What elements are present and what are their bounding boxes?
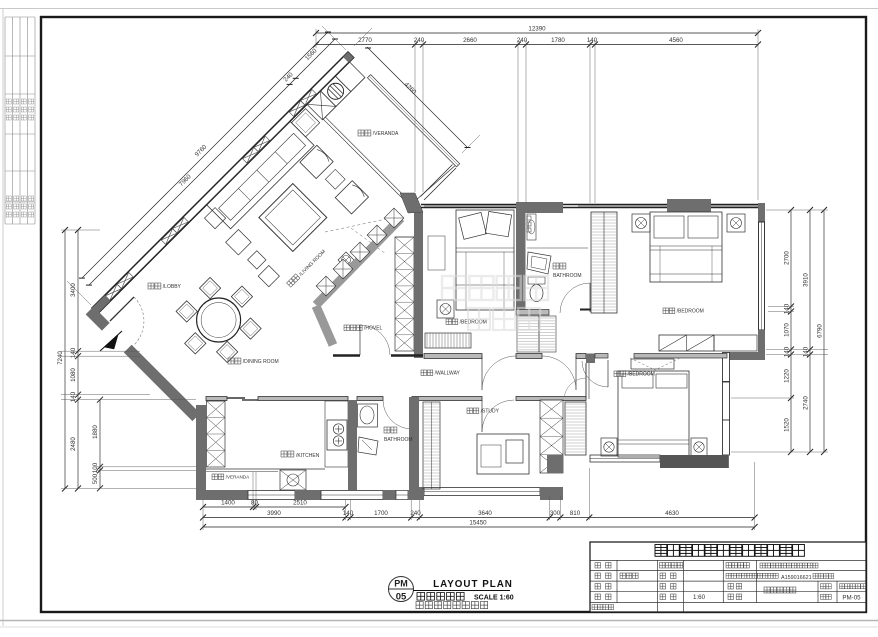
svg-text:140: 140 (70, 391, 77, 402)
svg-text:140: 140 (70, 347, 77, 358)
svg-text:/KITCHEN: /KITCHEN (296, 453, 320, 459)
svg-text:80: 80 (251, 500, 258, 507)
svg-text:BATHROOM: BATHROOM (553, 273, 582, 279)
svg-text:100: 100 (92, 462, 99, 473)
svg-text:/VERANDA: /VERANDA (226, 475, 250, 480)
svg-text:1780: 1780 (551, 37, 565, 44)
svg-text:1070: 1070 (784, 323, 791, 337)
svg-text:1520: 1520 (784, 418, 791, 432)
svg-text:6790: 6790 (817, 324, 824, 338)
svg-text:/DINING ROOM: /DINING ROOM (243, 359, 279, 365)
svg-text:300: 300 (550, 510, 561, 517)
svg-text:/BEDROOM: /BEDROOM (628, 372, 655, 378)
svg-text:SCALE 1:60: SCALE 1:60 (474, 595, 514, 602)
svg-text:1:60: 1:60 (693, 594, 706, 601)
svg-text:2480: 2480 (70, 437, 77, 451)
svg-text:140: 140 (803, 346, 810, 357)
svg-text:2660: 2660 (463, 37, 477, 44)
svg-text:2700: 2700 (784, 251, 791, 265)
svg-text:140: 140 (587, 37, 598, 44)
svg-text:PM-05: PM-05 (842, 594, 861, 601)
svg-text:PM: PM (394, 579, 408, 589)
svg-text:LAYOUT PLAN: LAYOUT PLAN (433, 579, 513, 590)
svg-text:1220: 1220 (784, 369, 791, 383)
svg-text:140: 140 (784, 346, 791, 357)
svg-text:140: 140 (784, 303, 791, 314)
svg-text:A159016621: A159016621 (781, 575, 812, 581)
svg-text:/WALLWAY: /WALLWAY (435, 371, 461, 377)
svg-text:4560: 4560 (669, 37, 683, 44)
svg-text:3640: 3640 (478, 510, 492, 517)
svg-text:/LOBBY: /LOBBY (163, 284, 182, 290)
svg-text:1080: 1080 (70, 368, 77, 382)
svg-text:BATHROOM: BATHROOM (384, 437, 413, 443)
svg-text:4630: 4630 (665, 510, 679, 517)
svg-text:3910: 3910 (803, 273, 810, 287)
svg-text:2510: 2510 (293, 500, 307, 507)
svg-text:2740: 2740 (803, 396, 810, 410)
svg-text:/STUDY: /STUDY (481, 409, 500, 415)
svg-text:/HOVEL: /HOVEL (364, 326, 383, 332)
svg-text:/VERANDA: /VERANDA (373, 131, 399, 137)
svg-text:15450: 15450 (469, 520, 487, 527)
svg-text:1400: 1400 (221, 500, 235, 507)
svg-text:2770: 2770 (358, 37, 372, 44)
svg-text:7240: 7240 (57, 351, 64, 365)
svg-text:1880: 1880 (92, 425, 99, 439)
svg-text:1700: 1700 (374, 510, 388, 517)
svg-text:810: 810 (570, 510, 581, 517)
svg-text:12390: 12390 (528, 26, 546, 33)
svg-text:05: 05 (396, 592, 407, 603)
svg-text:140: 140 (343, 510, 354, 517)
svg-text:/BEDROOM: /BEDROOM (677, 309, 704, 315)
svg-text:/BEDROOM: /BEDROOM (460, 320, 487, 326)
svg-text:500: 500 (92, 473, 99, 484)
svg-text:3990: 3990 (267, 510, 281, 517)
